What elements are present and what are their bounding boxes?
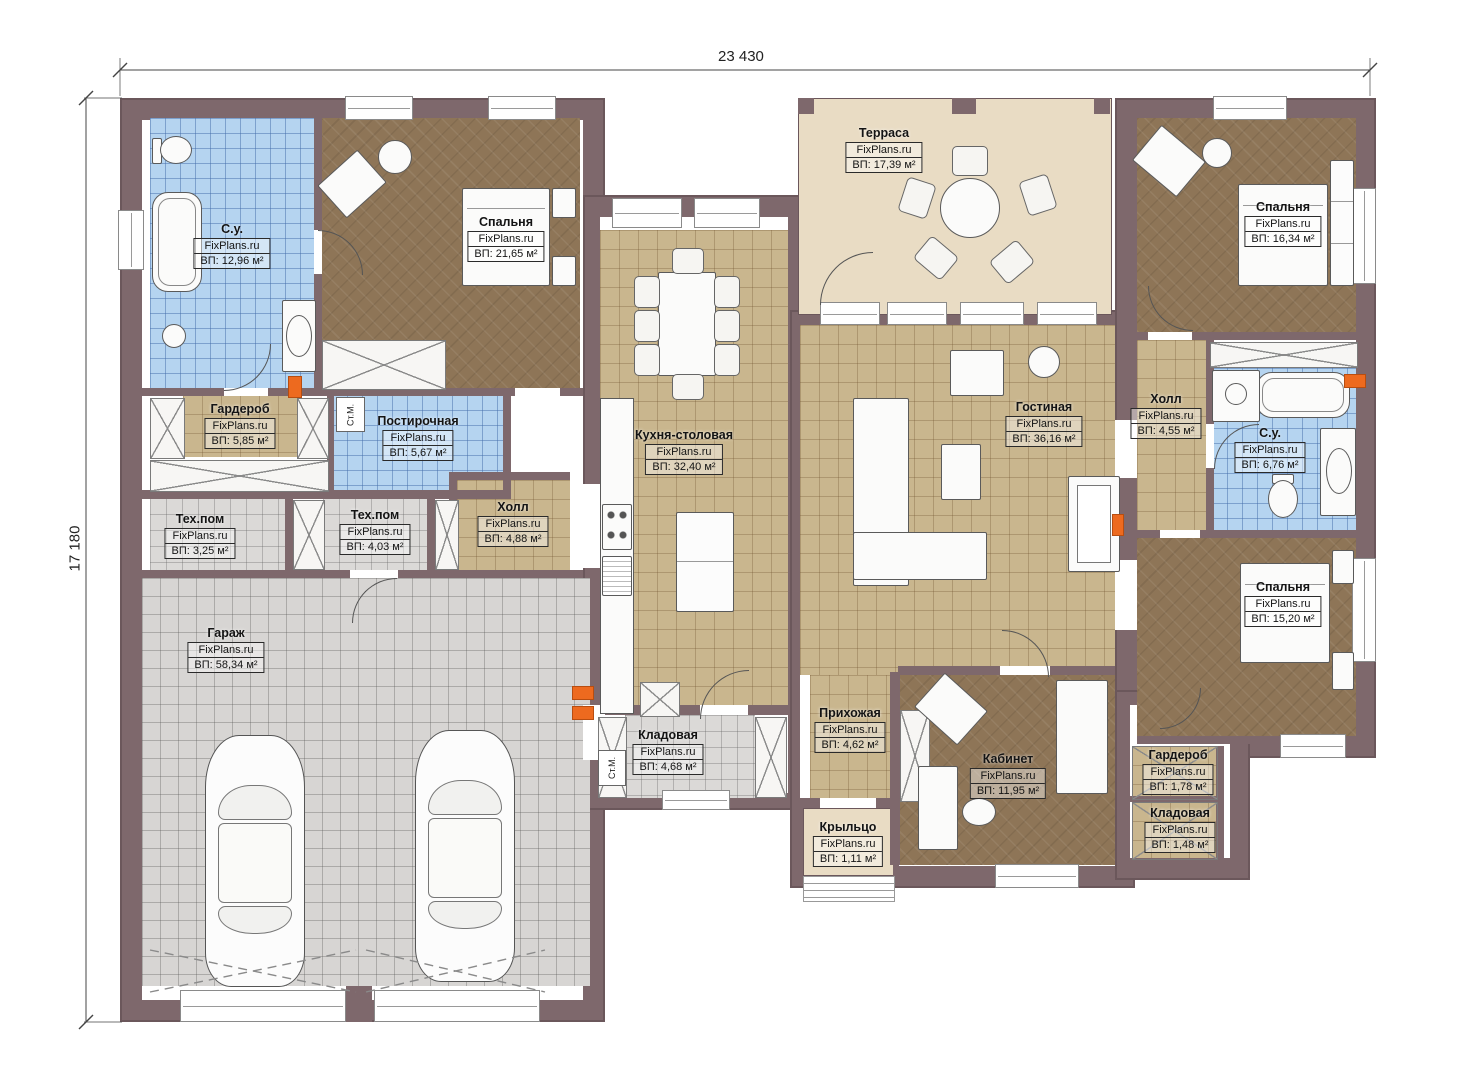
watermark: FixPlans.ru — [165, 529, 234, 544]
watermark: FixPlans.ru — [1235, 443, 1304, 458]
room-label-storage1: КладоваяFixPlans.ruВП: 4,68 м² — [632, 728, 703, 775]
watermark: FixPlans.ru — [1245, 597, 1320, 612]
door-opening — [350, 570, 398, 578]
watermark: FixPlans.ru — [383, 431, 452, 446]
room-area: ВП: 21,65 м² — [468, 247, 543, 261]
room-label-laundry: ПостирочнаяFixPlans.ruВП: 5,67 м² — [377, 414, 458, 461]
door-opening — [1148, 332, 1192, 340]
wall — [427, 498, 435, 570]
closet-hatch — [435, 500, 459, 570]
window — [1037, 302, 1097, 325]
dining-table — [658, 272, 716, 376]
closet-hatch — [150, 460, 329, 492]
window — [1213, 96, 1287, 120]
side-table — [378, 140, 412, 174]
window — [887, 302, 947, 325]
room-label-wardrobe1: ГардеробFixPlans.ruВП: 5,85 м² — [204, 402, 275, 449]
chair — [672, 248, 704, 274]
radiator-marker — [572, 706, 594, 720]
closet-hatch — [1210, 342, 1358, 368]
chair — [634, 310, 660, 342]
window — [118, 210, 144, 270]
armchair — [950, 350, 1004, 396]
room-area: ВП: 4,68 м² — [633, 760, 702, 774]
window — [1352, 558, 1376, 662]
closet-hatch — [293, 500, 325, 570]
round-table — [940, 178, 1000, 238]
sink — [1326, 448, 1352, 494]
room-area: ВП: 5,85 м² — [205, 434, 274, 448]
nightstand — [1330, 160, 1354, 286]
garage-door — [374, 990, 540, 1022]
window — [488, 96, 556, 120]
room-label-bed1: СпальняFixPlans.ruВП: 21,65 м² — [467, 215, 544, 262]
room-area: ВП: 12,96 м² — [194, 254, 269, 268]
chair — [714, 310, 740, 342]
room-label-tech1: Тех.помFixPlans.ruВП: 3,25 м² — [164, 512, 235, 559]
nightstand — [1332, 550, 1354, 584]
kitchen-sink — [602, 556, 632, 596]
room-area: ВП: 1,11 м² — [814, 852, 882, 866]
room-label-su1: С.у.FixPlans.ruВП: 12,96 м² — [193, 222, 270, 269]
chair — [952, 146, 988, 176]
room-label-hallway: ПрихожаяFixPlans.ruВП: 4,62 м² — [814, 706, 885, 753]
sofa — [1056, 680, 1108, 794]
car-roof — [218, 823, 292, 903]
chair — [634, 276, 660, 308]
window — [820, 302, 880, 325]
dimension-width-label: 23 430 — [718, 48, 764, 65]
room-label-hall2: ХоллFixPlans.ruВП: 4,55 м² — [1130, 392, 1201, 439]
room-area: ВП: 4,88 м² — [478, 532, 547, 546]
window — [1352, 188, 1376, 284]
garage-door-pillar — [346, 986, 372, 1022]
watermark: FixPlans.ru — [815, 723, 884, 738]
terrace-pillar — [952, 98, 976, 114]
shower-head — [1225, 383, 1247, 405]
door-opening — [1160, 530, 1200, 538]
chair — [634, 344, 660, 376]
coffee-table — [941, 444, 981, 500]
window — [345, 96, 413, 120]
watermark: FixPlans.ru — [1245, 217, 1320, 232]
watermark: FixPlans.ru — [1131, 409, 1200, 424]
watermark: FixPlans.ru — [1143, 765, 1212, 780]
room-label-office: КабинетFixPlans.ruВП: 11,95 м² — [970, 752, 1046, 799]
fridge — [640, 682, 680, 717]
fireplace-hearth — [1077, 485, 1111, 563]
watermark: FixPlans.ru — [188, 643, 263, 658]
toilet — [1268, 480, 1298, 518]
chair — [714, 344, 740, 376]
room-label-tech2: Тех.помFixPlans.ruВП: 4,03 м² — [339, 508, 410, 555]
washing-machine-label: Ст.М. — [336, 397, 365, 432]
nightstand — [552, 256, 576, 286]
shower-head — [162, 324, 186, 348]
window — [995, 864, 1079, 888]
wall — [449, 472, 570, 480]
room-label-bed2: СпальняFixPlans.ruВП: 16,34 м² — [1244, 200, 1321, 247]
watermark: FixPlans.ru — [633, 745, 702, 760]
closet-hatch — [755, 717, 787, 798]
watermark: FixPlans.ru — [205, 419, 274, 434]
porch-wall — [797, 806, 803, 876]
room-label-kitchen: Кухня-столоваяFixPlans.ruВП: 32,40 м² — [635, 428, 733, 475]
radiator-marker — [572, 686, 594, 700]
room-area: ВП: 1,78 м² — [1143, 780, 1212, 794]
room-label-wardrobe2: ГардеробFixPlans.ruВП: 1,78 м² — [1142, 748, 1213, 795]
garage-door — [180, 990, 346, 1022]
desk — [918, 766, 958, 850]
window — [960, 302, 1024, 325]
porch-steps — [803, 876, 895, 902]
floor-plan: 23 430 17 180 — [0, 0, 1474, 1080]
wall — [285, 498, 293, 570]
room-area: ВП: 3,25 м² — [165, 544, 234, 558]
window — [612, 198, 682, 228]
terrace-pillar — [1094, 98, 1110, 114]
closet-hatch — [150, 398, 185, 459]
radiator-marker — [1112, 514, 1124, 536]
watermark: FixPlans.ru — [468, 232, 543, 247]
kitchen-island — [676, 512, 734, 612]
chair — [714, 276, 740, 308]
stove — [602, 504, 632, 550]
room-area: ВП: 4,03 м² — [340, 540, 409, 554]
room-area: ВП: 4,62 м² — [815, 738, 884, 752]
room-label-porch: КрыльцоFixPlans.ruВП: 1,11 м² — [813, 820, 883, 867]
closet-hatch — [322, 340, 446, 390]
watermark: FixPlans.ru — [814, 837, 882, 852]
window — [662, 790, 730, 810]
room-label-su2: С.у.FixPlans.ruВП: 6,76 м² — [1234, 426, 1305, 473]
sofa-chaise — [853, 532, 987, 580]
room-area: ВП: 5,67 м² — [383, 446, 452, 460]
room-area: ВП: 6,76 м² — [1235, 458, 1304, 472]
watermark: FixPlans.ru — [194, 239, 269, 254]
room-label-terrace: ТеррасаFixPlans.ruВП: 17,39 м² — [845, 126, 922, 173]
radiator-marker — [288, 376, 302, 398]
door-opening — [515, 388, 560, 396]
desk-chair — [962, 798, 996, 826]
room-area: ВП: 4,55 м² — [1131, 424, 1200, 438]
room-area: ВП: 36,16 м² — [1006, 432, 1081, 446]
side-table — [1028, 346, 1060, 378]
nightstand — [1332, 652, 1354, 690]
room-area: ВП: 32,40 м² — [646, 460, 721, 474]
porch-wall — [893, 806, 899, 876]
room-area: ВП: 58,34 м² — [188, 658, 263, 672]
watermark: FixPlans.ru — [1006, 417, 1081, 432]
watermark: FixPlans.ru — [478, 517, 547, 532]
car — [205, 735, 305, 987]
window — [1280, 734, 1346, 758]
room-area: ВП: 15,20 м² — [1245, 612, 1320, 626]
car-roof — [428, 818, 502, 898]
door-opening — [1206, 424, 1214, 468]
door-opening — [820, 798, 876, 808]
watermark: FixPlans.ru — [646, 445, 721, 460]
side-table — [1202, 138, 1232, 168]
watermark: FixPlans.ru — [1145, 823, 1214, 838]
car — [415, 730, 515, 982]
room-area: ВП: 16,34 м² — [1245, 232, 1320, 246]
room-area: ВП: 1,48 м² — [1145, 838, 1214, 852]
terrace-pillar — [798, 98, 814, 114]
watermark: FixPlans.ru — [340, 525, 409, 540]
room-label-living: ГостинаяFixPlans.ruВП: 36,16 м² — [1005, 400, 1082, 447]
watermark: FixPlans.ru — [971, 769, 1045, 784]
room-label-garage: ГаражFixPlans.ruВП: 58,34 м² — [187, 626, 264, 673]
room-label-hall1: ХоллFixPlans.ruВП: 4,88 м² — [477, 500, 548, 547]
room-area: ВП: 17,39 м² — [846, 158, 921, 172]
room-area: ВП: 11,95 м² — [971, 784, 1045, 798]
window — [694, 198, 760, 228]
washing-machine-label: Ст.М. — [598, 750, 626, 786]
sink — [286, 315, 312, 357]
radiator-marker — [1344, 374, 1366, 388]
room-label-bed3: СпальняFixPlans.ruВП: 15,20 м² — [1244, 580, 1321, 627]
bathtub — [1256, 372, 1350, 418]
nightstand — [552, 188, 576, 218]
room-label-storage2: КладоваяFixPlans.ruВП: 1,48 м² — [1144, 806, 1215, 853]
watermark: FixPlans.ru — [846, 143, 921, 158]
closet-hatch — [297, 398, 329, 459]
toilet — [160, 136, 192, 164]
chair — [672, 374, 704, 400]
dimension-height-label: 17 180 — [66, 526, 83, 572]
